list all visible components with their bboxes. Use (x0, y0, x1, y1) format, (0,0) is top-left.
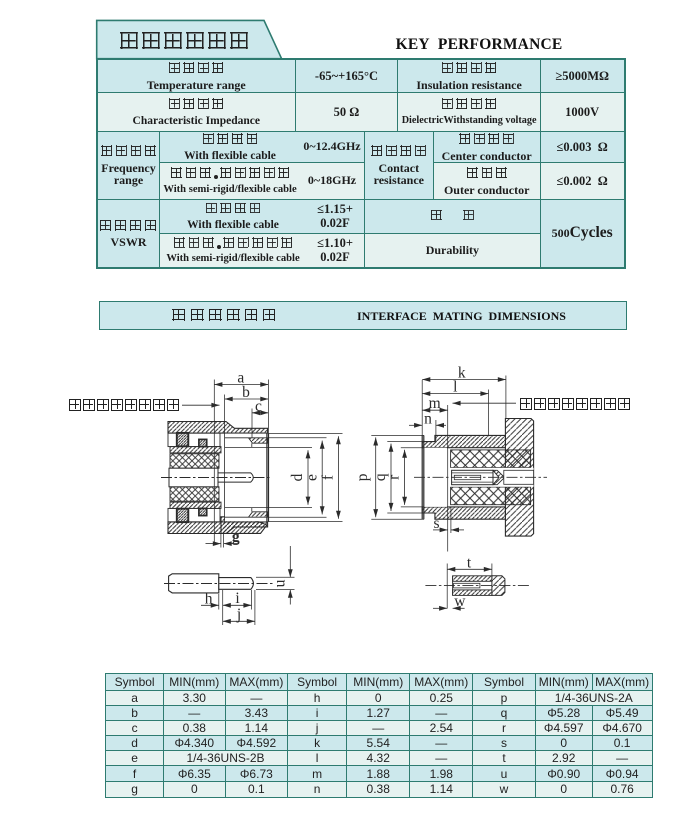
svg-text:r: r (385, 474, 402, 480)
svg-text:p: p (354, 473, 371, 481)
svg-text:s: s (433, 515, 439, 532)
svg-text:i: i (235, 590, 240, 607)
svg-text:l: l (453, 379, 457, 396)
svg-text:e: e (304, 474, 321, 481)
svg-text:j: j (236, 606, 241, 623)
svg-text:w: w (454, 593, 466, 610)
svg-text:f: f (320, 474, 337, 480)
svg-text:g: g (232, 529, 240, 546)
svg-text:k: k (458, 365, 466, 382)
svg-text:n: n (424, 410, 432, 427)
svg-text:t: t (467, 554, 472, 571)
svg-text:b: b (242, 384, 250, 401)
svg-text:c: c (255, 398, 262, 415)
svg-text:h: h (205, 590, 213, 607)
svg-text:u: u (272, 579, 289, 587)
